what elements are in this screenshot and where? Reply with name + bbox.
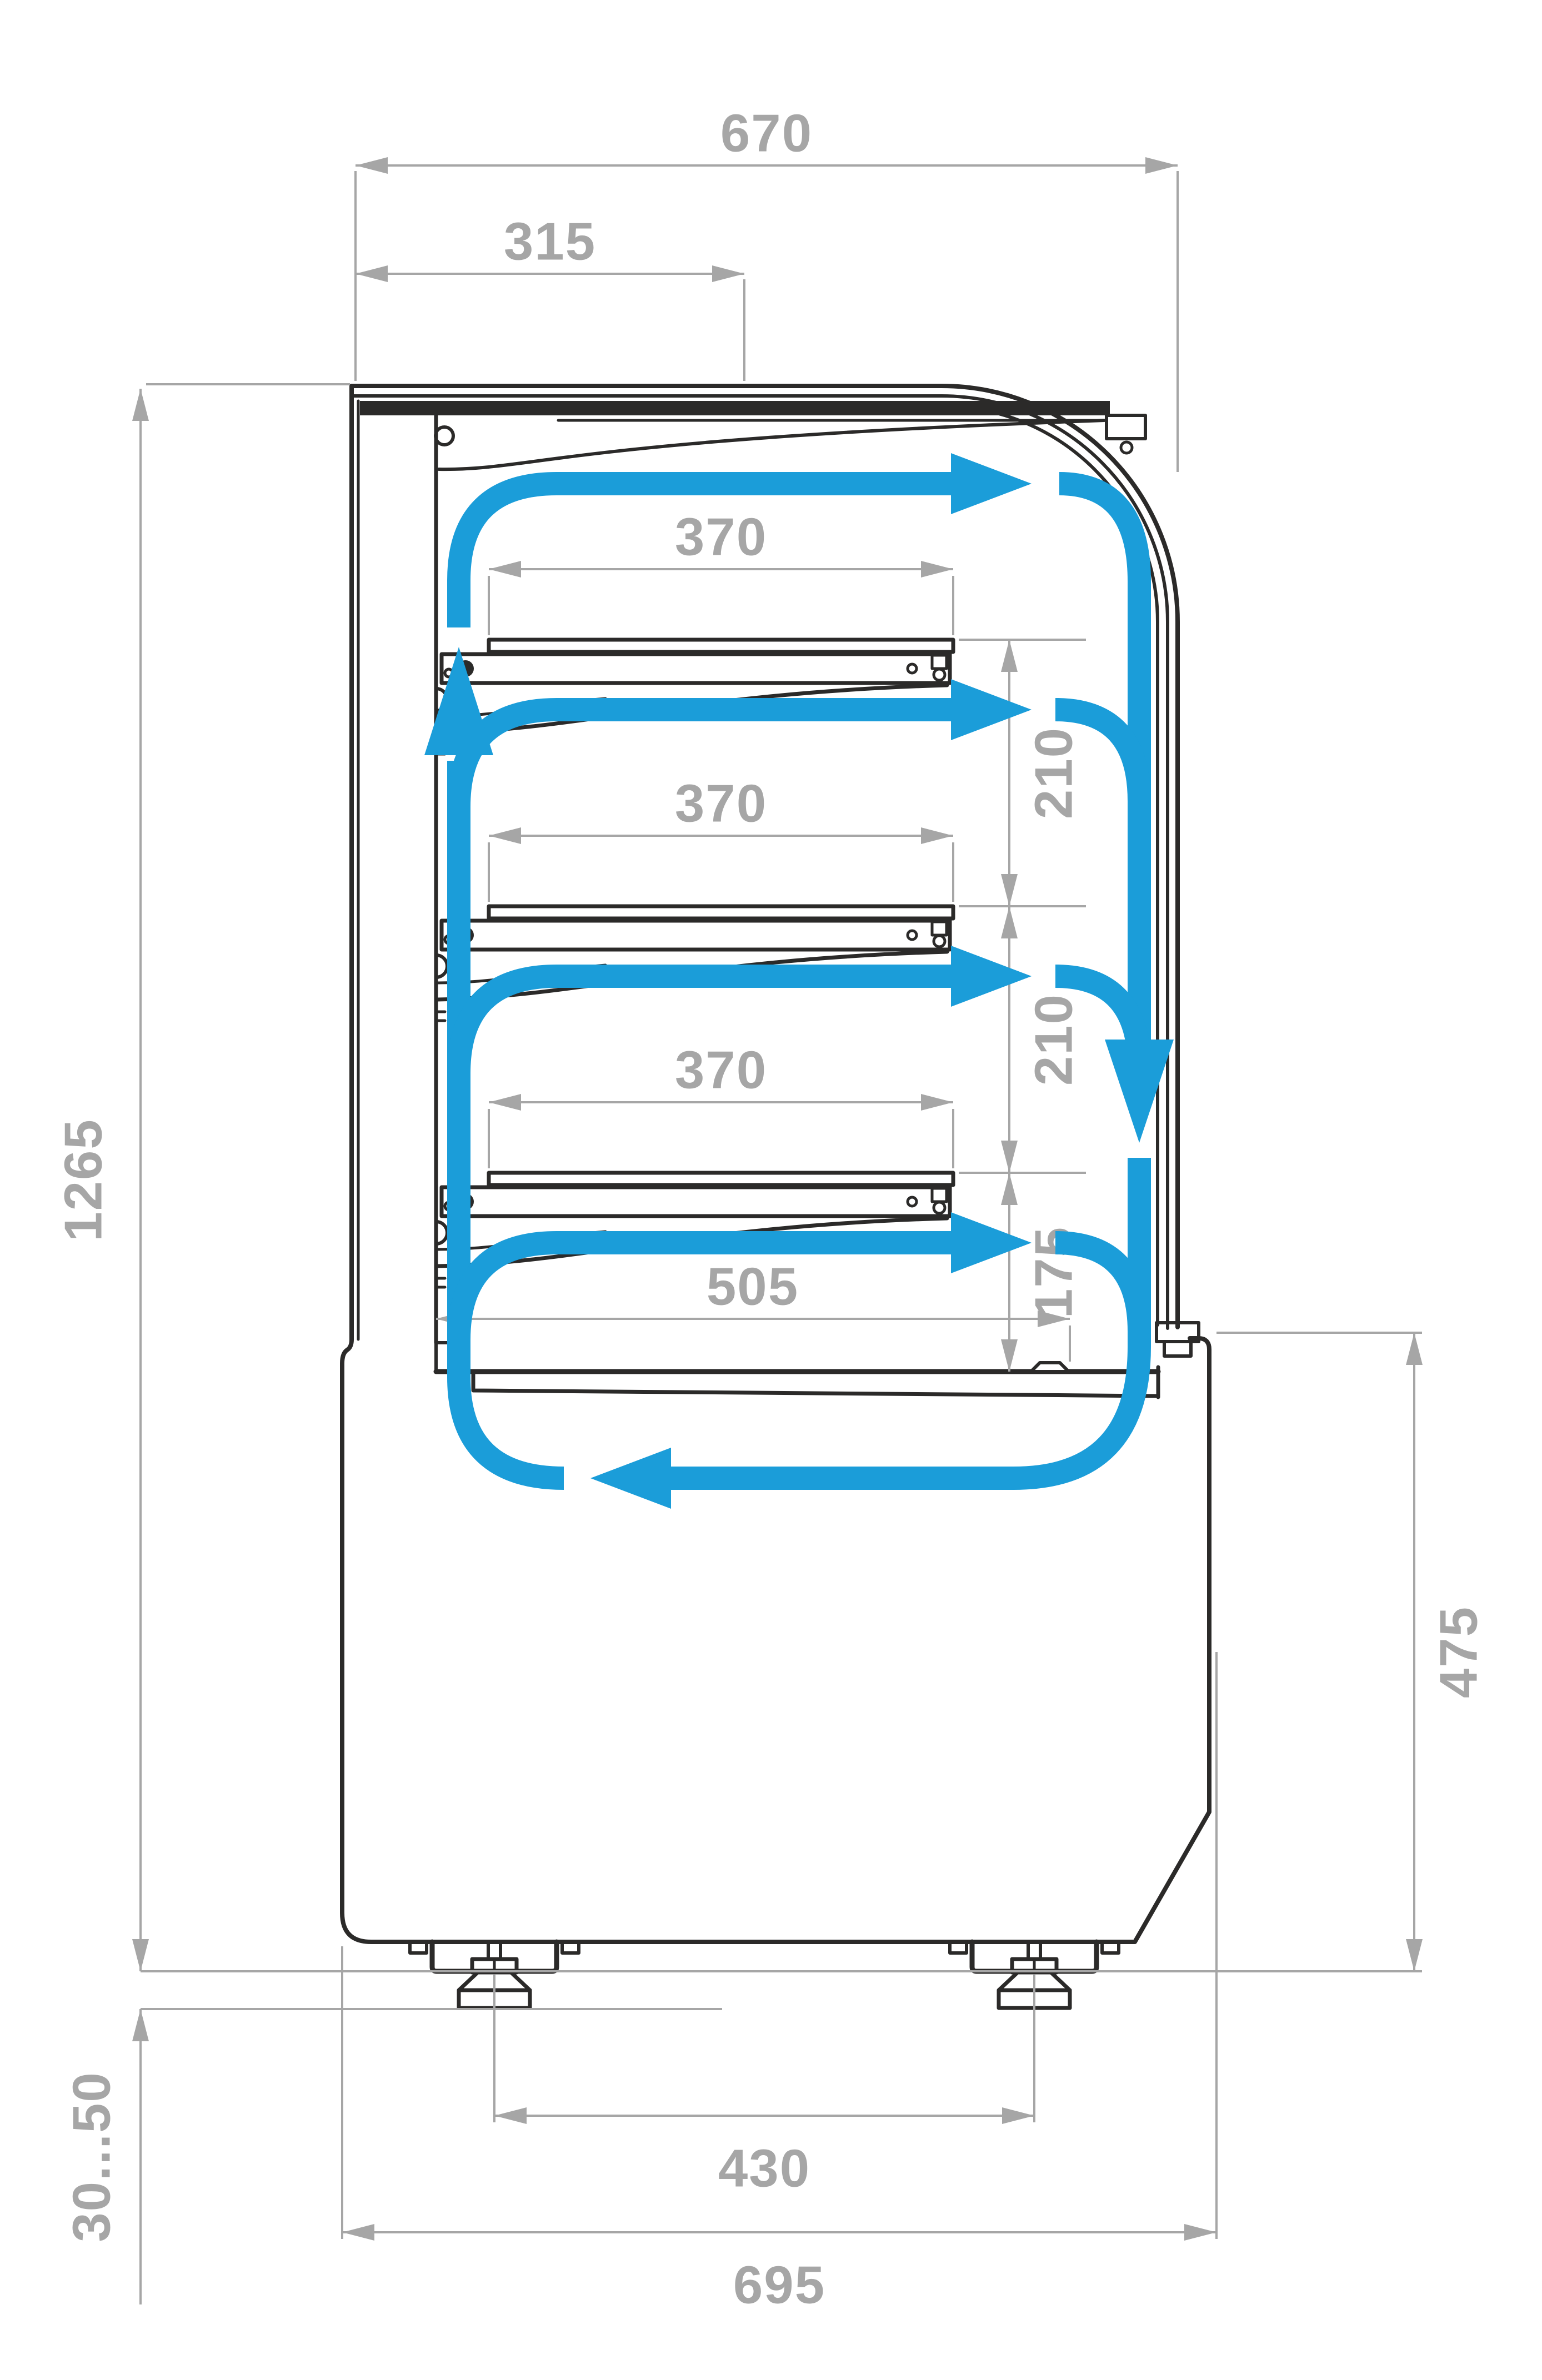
dimension-arrow-icon <box>1001 1339 1018 1372</box>
dimension-label-shelf-width-1: 370 <box>675 508 767 567</box>
canopy-front-fitting <box>1107 415 1145 439</box>
shelf-hook <box>932 655 947 669</box>
shelf-hook <box>934 1202 945 1213</box>
foot-tab <box>410 1942 427 1953</box>
foot-bolt <box>488 1944 500 1959</box>
body-outline <box>342 386 1209 1942</box>
display-case-section-drawing: 6703153703703705054306951265210210175475… <box>0 0 1542 2380</box>
dimension-label-shelf-width-3: 370 <box>675 1041 767 1100</box>
shelf-screw-icon <box>908 931 917 940</box>
dimension-label-base-depth: 695 <box>733 2256 825 2315</box>
dimension-arrow-icon <box>489 1094 521 1111</box>
shelf-hook <box>934 669 945 680</box>
dimension-label-shelf-gap-2: 210 <box>1024 993 1084 1086</box>
airflow-arrow-down-icon <box>1105 1040 1174 1143</box>
dimension-arrow-icon <box>356 157 388 174</box>
dimension-label-top-width: 670 <box>720 104 813 163</box>
shelf-screw-icon <box>908 664 917 673</box>
dimension-shelf-gap-2 <box>1001 906 1018 1173</box>
cabinet-outline <box>342 386 1209 1942</box>
airflow-path-shelf-curtain-3 <box>459 1243 951 1340</box>
shelf-rail <box>442 654 950 683</box>
dimension-arrow-icon <box>132 389 149 421</box>
foot-tab <box>1102 1942 1119 1953</box>
shelf-rail <box>442 1187 950 1216</box>
airflow-arrow-top-icon <box>951 453 1032 514</box>
canopy-lid-band <box>360 401 1110 415</box>
shelf-top-plate <box>489 906 953 918</box>
dimension-label-overall-height: 1265 <box>54 1118 113 1242</box>
shelf-hook <box>932 922 947 935</box>
canopy-front-hinge <box>1121 442 1132 453</box>
dimension-arrow-icon <box>489 827 521 844</box>
dimension-arrow-icon <box>489 561 521 578</box>
foot-tab <box>562 1942 579 1953</box>
airflow-arrow-shelf-1-icon <box>951 679 1032 740</box>
dimension-base-depth <box>342 2224 1216 2241</box>
shelf-hook <box>932 1188 947 1202</box>
dimension-arrow-icon <box>1145 157 1178 174</box>
shelf-top-plate <box>489 640 953 652</box>
dimension-layer: 6703153703703705054306951265210210175475… <box>54 104 1489 2315</box>
dimension-deck-gap <box>1001 1173 1018 1372</box>
dimension-label-shelf-gap-1: 210 <box>1024 727 1084 819</box>
shelf-screw-icon <box>908 1197 917 1206</box>
dimension-base-height <box>1406 1333 1423 1971</box>
dimension-arrow-icon <box>342 2224 374 2241</box>
dimension-arrow-icon <box>1001 1173 1018 1205</box>
airflow-arrow-shelf-3-icon <box>951 1212 1032 1273</box>
airflow-layer <box>424 453 1174 1509</box>
dimension-arrow-icon <box>1001 906 1018 938</box>
shelf-2 <box>436 906 953 1021</box>
dimension-label-lid-width: 315 <box>504 212 596 272</box>
dimension-feet-spacing <box>494 2107 1034 2124</box>
dimension-label-deck-width: 505 <box>707 1257 799 1317</box>
dimension-arrow-icon <box>356 265 388 282</box>
shelf-3 <box>436 1173 953 1287</box>
canopy-bracket-hole <box>435 427 453 445</box>
dimension-arrow-icon <box>132 1939 149 1971</box>
dimension-arrow-icon <box>494 2107 527 2124</box>
dimension-label-feet-spacing: 430 <box>718 2139 810 2198</box>
shelf-rail <box>442 921 950 950</box>
dimension-arrow-icon <box>1184 2224 1216 2241</box>
dimension-leg-adjust <box>132 2009 149 2304</box>
shelf-top-plate <box>489 1173 953 1185</box>
dimension-arrow-icon <box>1001 874 1018 906</box>
adjustable-feet <box>410 1942 1119 2008</box>
dimension-arrow-icon <box>1001 640 1018 672</box>
canopy-support-arm <box>439 420 1104 469</box>
dimension-label-leg-adjust: 30...50 <box>62 2071 122 2242</box>
shelves <box>436 640 953 1287</box>
dimension-arrow-icon <box>1406 1333 1423 1365</box>
dimension-arrow-icon <box>921 827 953 844</box>
airflow-arrow-return-icon <box>590 1448 671 1509</box>
airflow-arrow-shelf-2-icon <box>951 946 1032 1007</box>
dimension-arrow-icon <box>921 1094 953 1111</box>
foot-tab <box>950 1942 967 1953</box>
shelf-hook <box>934 936 945 947</box>
dimension-label-shelf-width-2: 370 <box>675 774 767 833</box>
dimension-overall-height <box>132 389 149 1971</box>
foot-bolt <box>1028 1944 1040 1959</box>
deck-stop-lip <box>1031 1363 1069 1372</box>
dimension-shelf-gap-1 <box>1001 640 1018 906</box>
dimension-arrow-icon <box>921 561 953 578</box>
dimension-arrow-icon <box>712 265 744 282</box>
dimension-arrow-icon <box>1002 2107 1034 2124</box>
dimension-arrow-icon <box>1001 1141 1018 1173</box>
dimension-label-base-height: 475 <box>1429 1606 1489 1698</box>
shelf-1 <box>436 640 953 754</box>
dimension-arrow-icon <box>132 2009 149 2041</box>
dimension-arrow-icon <box>1406 1939 1423 1971</box>
bottom-deck <box>436 1343 1158 1397</box>
